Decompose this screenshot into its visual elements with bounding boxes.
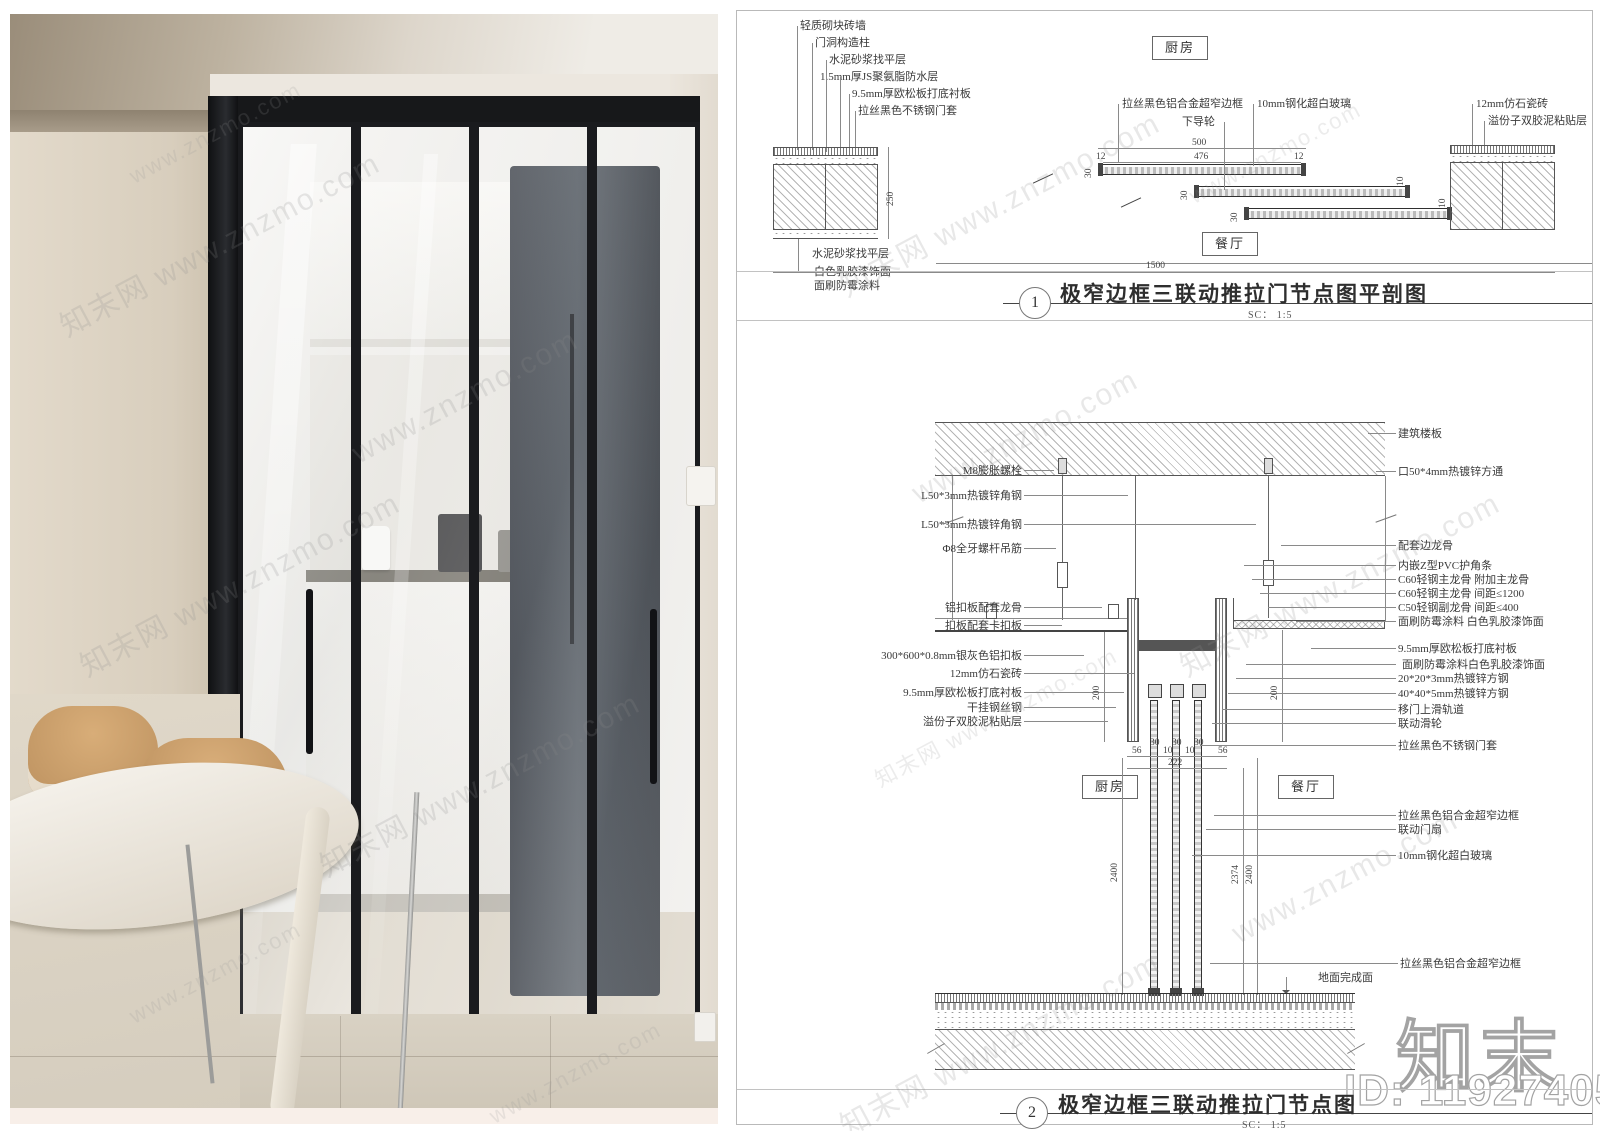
d2-dim-height-right: 2400 — [1245, 865, 1255, 884]
panel-cap — [1301, 163, 1306, 176]
d2-dim-p1: 30 — [1150, 738, 1160, 748]
leader — [1368, 433, 1396, 434]
d1-right-wall-tile — [1450, 145, 1555, 154]
hanger-turnbuckle — [1263, 560, 1274, 586]
d2-left-label: 干挂钢丝钢 — [862, 702, 1022, 714]
d1-panel-bar-3 — [1244, 208, 1452, 219]
leader — [1472, 104, 1473, 146]
dimline — [773, 272, 1555, 273]
leader — [1210, 963, 1398, 964]
d2-right-ceiling-edge — [1233, 598, 1234, 629]
d2-right-label: 拉丝黑色不锈钢门套 — [1398, 740, 1497, 752]
d2-left-ceiling-top — [935, 618, 1127, 619]
separator — [737, 271, 1592, 272]
d1-right-label: 溢份子双胶泥粘贴层 — [1488, 115, 1587, 127]
anchor-bolt — [1058, 458, 1067, 474]
panel-cap — [1194, 185, 1199, 198]
d2-dim-height-mid: 2374 — [1231, 865, 1241, 884]
asset-id: ID: 1192740511 — [1344, 1066, 1600, 1116]
d2-floor-tile — [935, 993, 1355, 1003]
leader — [1376, 471, 1396, 472]
leader — [1024, 524, 1256, 525]
d2-right-label: 地面完成面 — [1318, 972, 1373, 984]
dimline — [1282, 630, 1283, 742]
d1-right-wall-screed — [1450, 154, 1555, 162]
d1-panel-bar-1 — [1098, 164, 1306, 175]
leader — [1286, 977, 1287, 991]
d1-dim-panel3: 30 — [1230, 213, 1240, 223]
d2-scale: SC： 1:5 — [1242, 1116, 1287, 1131]
leader — [1214, 815, 1396, 816]
reference-photo — [10, 14, 718, 1108]
dimline — [1098, 148, 1306, 149]
leader — [1024, 607, 1102, 608]
d1-left-label: 水泥砂浆找平层 — [829, 54, 906, 66]
d2-dim-drop-left: 200 — [1092, 686, 1102, 700]
d2-left-label: Φ8全牙螺杆吊筋 — [862, 543, 1022, 555]
d2-left-label: L50*3mm热镀锌角钢 — [862, 519, 1022, 531]
d2-pocket-wall-left — [1127, 598, 1139, 742]
d2-right-label: 联动滑轮 — [1398, 718, 1442, 730]
leader — [1222, 709, 1396, 710]
d2-number-circle: 2 — [1016, 1097, 1048, 1129]
leader — [1200, 745, 1396, 746]
anchor-bolt — [1264, 458, 1273, 474]
screenshot-root: 轻质砌块砖墙 门洞构造柱 水泥砂浆找平层 1.5mm厚JS聚氨脂防水层 9.5m… — [0, 0, 1600, 1131]
hanger-rod — [1062, 476, 1063, 620]
dimline — [1127, 756, 1227, 757]
door-glass-panel-4 — [592, 122, 700, 1074]
d2-right-label: C60轻钢主龙骨 间距≤1200 — [1398, 588, 1524, 600]
dimline — [1243, 768, 1244, 995]
dimline — [1103, 162, 1301, 163]
leader — [849, 94, 850, 154]
photo-bottom-strip — [10, 1108, 718, 1124]
d1-title: 极窄边框三联动推拉门节点图平剖图 — [1060, 278, 1428, 308]
leader — [1224, 122, 1225, 190]
leader — [1281, 545, 1396, 546]
d2-right-label: 面刷防霉涂料 白色乳胶漆饰面 — [1398, 616, 1544, 628]
d2-dim-jamb-left: 56 — [1132, 746, 1142, 756]
floor-grout-h1 — [10, 1056, 718, 1057]
leader — [840, 77, 841, 155]
d1-right-wall-joint — [1502, 163, 1503, 229]
d2-right-label: 面刷防霉涂料白色乳胶漆饰面 — [1402, 659, 1545, 671]
leader — [1024, 470, 1054, 471]
light-switch — [686, 466, 716, 506]
d2-dim-drop-right: 200 — [1270, 686, 1280, 700]
hanger-rod — [1268, 476, 1269, 618]
d2-right-label: 10mm钢化超白玻璃 — [1398, 850, 1492, 862]
leader — [812, 43, 813, 150]
d2-left-label: 300*600*0.8mm银灰色铝扣板 — [802, 650, 1022, 662]
d1-right-label: 12mm仿石瓷砖 — [1476, 98, 1548, 110]
d2-dim-jamb-right: 56 — [1218, 746, 1228, 756]
leader — [798, 239, 799, 271]
d1-left-wall-screed — [773, 156, 878, 164]
d2-right-label: 9.5mm厚欧松板打底衬板 — [1398, 643, 1517, 655]
d1-left-wall-joint — [825, 165, 826, 229]
d1-left-label: 9.5mm厚欧松板打底衬板 — [852, 88, 971, 100]
leader — [1024, 548, 1056, 549]
dimline — [1257, 758, 1258, 995]
leader — [1252, 579, 1396, 580]
d2-right-bound — [1385, 476, 1386, 622]
d2-left-label: 扣板配套卡扣板 — [862, 620, 1022, 632]
leader — [826, 60, 827, 152]
d2-track-beam — [1139, 640, 1215, 651]
d1-dim-glass: 476 — [1194, 152, 1208, 162]
leader — [1024, 721, 1108, 722]
d2-floor-slab — [935, 1030, 1355, 1070]
d2-right-label: 拉丝黑色铝合金超窄边框 — [1400, 958, 1521, 970]
leader — [797, 26, 798, 150]
leader — [1260, 593, 1396, 594]
detail-sheet: 轻质砌块砖墙 门洞构造柱 水泥砂浆找平层 1.5mm厚JS聚氨脂防水层 9.5m… — [736, 10, 1594, 1126]
d2-dim-g1: 10 — [1163, 746, 1173, 756]
hanger-turnbuckle — [1057, 562, 1068, 588]
leader-long — [936, 263, 1592, 264]
d2-floor-membrane — [935, 1003, 1355, 1010]
leader — [1296, 621, 1396, 622]
d1-dim-gap1: 10 — [1396, 177, 1406, 187]
leader — [1024, 692, 1124, 693]
d2-pocket-wall-right — [1215, 598, 1227, 742]
panel-cap — [1098, 163, 1103, 176]
leader — [1212, 723, 1396, 724]
d2-dim-p3: 30 — [1194, 738, 1204, 748]
door-handle-1 — [306, 589, 313, 754]
leader — [1024, 495, 1128, 496]
d1-panel-bar-2 — [1194, 186, 1410, 197]
d1-door-label: 下导轮 — [1182, 116, 1215, 128]
leader — [1268, 607, 1396, 608]
d1-dim-wall: 250 — [886, 192, 896, 206]
d1-dim-edge-r: 12 — [1294, 152, 1304, 162]
d1-door-label: 10mm钢化超白玻璃 — [1257, 98, 1351, 110]
d1-dim-panel2: 30 — [1180, 191, 1190, 201]
d2-right-label: 配套边龙骨 — [1398, 540, 1453, 552]
floor-grout-v1 — [340, 1016, 341, 1108]
d1-bottom-label: 面刷防霉涂料 — [814, 280, 880, 292]
d1-left-label: 轻质砌块砖墙 — [800, 20, 866, 32]
leader — [1192, 855, 1396, 856]
leader — [1118, 104, 1119, 162]
d2-dim-g2: 10 — [1185, 746, 1195, 756]
door-top-track — [208, 96, 700, 122]
d2-right-label: 联动门扇 — [1398, 824, 1442, 836]
leader — [1246, 664, 1396, 665]
d1-dim-overall: 1500 — [1146, 261, 1165, 271]
floor-grout-v2 — [550, 1016, 551, 1108]
d1-bottom-label: 水泥砂浆找平层 — [812, 248, 889, 260]
d2-floor-screed — [935, 1010, 1355, 1030]
roller — [1170, 684, 1184, 698]
d1-room-bottom: 餐厅 — [1202, 232, 1258, 256]
d1-left-label: 拉丝黑色不锈钢门套 — [858, 105, 957, 117]
d2-dim-track-total: 222 — [1168, 758, 1182, 768]
d2-right-label: 20*20*3mm热镀锌方钢 — [1398, 673, 1509, 685]
d1-room-top: 厨房 — [1152, 36, 1208, 60]
d2-right-label: 移门上滑轨道 — [1398, 704, 1464, 716]
leader — [1228, 693, 1396, 694]
d1-dim-panel1: 30 — [1084, 169, 1094, 179]
d1-left-label: 门洞构造柱 — [815, 37, 870, 49]
d2-right-label: C50轻钢副龙骨 间距≤400 — [1398, 602, 1519, 614]
d2-right-label: C60轻钢主龙骨 附加主龙骨 — [1398, 574, 1529, 586]
d2-left-label: 9.5mm厚欧松板打底衬板 — [832, 687, 1022, 699]
d1-left-wall-bottom — [773, 231, 878, 239]
separator — [737, 320, 1592, 321]
leader — [1206, 829, 1396, 830]
d2-left-label: 铝扣板配套龙骨 — [862, 602, 1022, 614]
leader — [1024, 625, 1062, 626]
leader — [1024, 707, 1116, 708]
d2-right-label: 内嵌Z型PVC护角条 — [1398, 560, 1492, 572]
d2-right-label: 口50*4mm热镀锌方通 — [1398, 466, 1503, 478]
wall-outlet — [694, 1012, 716, 1042]
leader — [1311, 648, 1396, 649]
d2-left-label: 溢份子双胶泥粘贴层 — [832, 716, 1022, 728]
d2-room-left: 厨房 — [1082, 775, 1138, 799]
dimline — [1104, 632, 1105, 742]
d1-left-label: 1.5mm厚JS聚氨脂防水层 — [820, 71, 938, 83]
d2-room-right: 餐厅 — [1278, 775, 1334, 799]
leader — [1244, 565, 1396, 566]
d2-right-label: 拉丝黑色铝合金超窄边框 — [1398, 810, 1519, 822]
d2-dim-height-left: 2400 — [1110, 863, 1120, 882]
hanger-rod — [1135, 476, 1136, 600]
d2-right-label: 建筑楼板 — [1398, 428, 1442, 440]
roller — [1148, 684, 1162, 698]
dimline — [1122, 758, 1123, 995]
roller — [1192, 684, 1206, 698]
d1-dim-edge-l: 12 — [1096, 152, 1106, 162]
panel-cap — [1244, 207, 1249, 220]
door-glass-panel-3 — [474, 122, 592, 1070]
d1-number-circle: 1 — [1019, 287, 1051, 319]
leader — [1024, 673, 1134, 674]
d1-dim-opening: 500 — [1192, 138, 1206, 148]
door-handle-2 — [650, 609, 657, 784]
d1-left-wall-tile — [773, 147, 878, 156]
ceiling-clip — [1108, 604, 1119, 619]
d2-dim-p2: 30 — [1172, 738, 1182, 748]
leader — [1253, 104, 1254, 166]
d1-scale: SC： 1:5 — [1248, 306, 1293, 321]
leader — [1236, 678, 1396, 679]
d2-left-label: M8膨胀螺栓 — [862, 465, 1022, 477]
d1-dim-gap2: 10 — [1438, 199, 1448, 209]
d2-right-label: 40*40*5mm热镀锌方钢 — [1398, 688, 1509, 700]
d2-left-label: 12mm仿石瓷砖 — [862, 668, 1022, 680]
d2-left-label: L50*3mm热镀锌角钢 — [862, 490, 1022, 502]
leader — [1024, 655, 1084, 656]
dimline — [1127, 768, 1227, 769]
d1-door-label: 拉丝黑色铝合金超窄边框 — [1122, 98, 1243, 110]
d2-title: 极窄边框三联动推拉门节点图 — [1058, 1089, 1357, 1119]
panel-cap — [1405, 185, 1410, 198]
